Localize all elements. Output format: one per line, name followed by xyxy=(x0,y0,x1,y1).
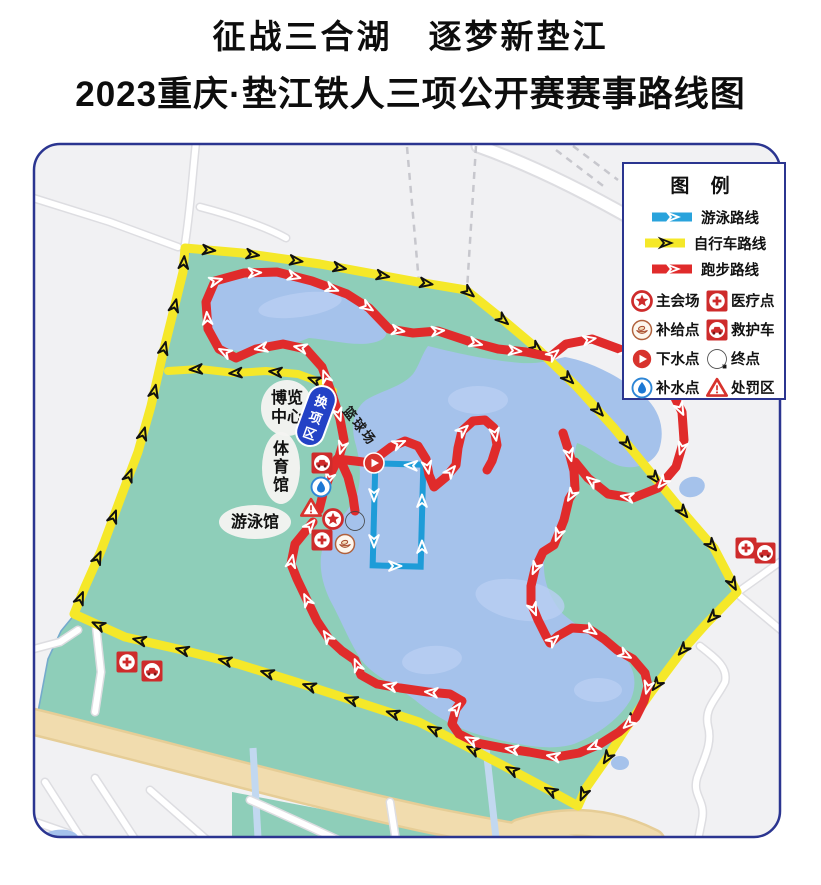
medical-icon xyxy=(117,652,138,673)
penalty-icon xyxy=(707,379,726,395)
svg-text:体: 体 xyxy=(273,439,290,458)
ambulance-icon xyxy=(705,318,729,342)
legend-point-label: 补水点 xyxy=(656,377,700,398)
penalty-icon xyxy=(705,376,729,400)
medical-icon xyxy=(312,530,333,551)
water-entry-icon xyxy=(630,347,654,371)
race-route-poster: 博览中心体育馆游泳馆篮球场换项区 征战三合湖 逐梦新垫江 2023重庆·垫江铁人… xyxy=(0,0,821,885)
legend-point-label: 主会场 xyxy=(656,290,700,311)
legend-point-penalty: 处罚区 xyxy=(705,375,778,400)
ambulance-icon xyxy=(312,453,333,474)
legend-point-water-supply: 补水点 xyxy=(630,375,703,400)
legend-title: 图 例 xyxy=(630,171,778,198)
legend-point-water-entry: 下水点 xyxy=(630,346,703,371)
finish-icon xyxy=(705,347,729,371)
legend-point-main-venue: 主会场 xyxy=(630,288,703,313)
legend-point-label: 救护车 xyxy=(731,319,775,340)
svg-text:育: 育 xyxy=(273,457,289,476)
run-route-swatch xyxy=(649,262,695,276)
map-canvas: 博览中心体育馆游泳馆篮球场换项区 xyxy=(0,0,821,885)
legend-point-ambulance: 救护车 xyxy=(705,317,778,342)
legend-route-list: 游泳路线自行车路线跑步路线 xyxy=(630,204,778,282)
legend-point-list: 主会场医疗点补给点救护车下水点终点补水点处罚区 xyxy=(630,288,778,400)
finish-icon xyxy=(708,349,727,368)
legend-point-label: 补给点 xyxy=(656,319,700,340)
water-entry-icon xyxy=(632,349,652,369)
legend-route-label: 自行车路线 xyxy=(694,233,767,254)
legend-point-finish: 终点 xyxy=(705,346,778,371)
poster-title-line2: 2023重庆·垫江铁人三项公开赛赛事路线图 xyxy=(0,66,821,117)
ambulance-icon xyxy=(142,661,163,682)
legend-point-label: 终点 xyxy=(731,348,760,369)
supply-icon xyxy=(633,320,652,339)
ambulance-icon xyxy=(707,319,728,340)
main-venue-icon xyxy=(633,291,652,310)
legend-route-label: 游泳路线 xyxy=(701,207,759,228)
water-supply-icon xyxy=(633,378,652,397)
legend-point-label: 医疗点 xyxy=(731,290,775,311)
pond-1 xyxy=(611,756,629,770)
supply-icon xyxy=(336,535,355,554)
poster-title-line1: 征战三合湖 逐梦新垫江 xyxy=(0,10,821,58)
svg-text:游泳馆: 游泳馆 xyxy=(231,512,279,531)
legend-route-label: 跑步路线 xyxy=(701,259,759,280)
main-venue-icon xyxy=(630,289,654,313)
stream-0 xyxy=(253,748,258,838)
medical-icon xyxy=(736,538,757,559)
label-swimming-hall: 游泳馆 xyxy=(219,505,291,539)
legend-point-label: 处罚区 xyxy=(731,377,775,398)
legend-route-swim: 游泳路线 xyxy=(630,204,778,230)
legend: 图 例 游泳路线自行车路线跑步路线 主会场医疗点补给点救护车下水点终点补水点处罚… xyxy=(622,162,786,400)
legend-point-supply: 补给点 xyxy=(630,317,703,342)
title-block: 征战三合湖 逐梦新垫江 2023重庆·垫江铁人三项公开赛赛事路线图 xyxy=(0,10,821,117)
highway-2 xyxy=(470,834,540,882)
water-supply-icon xyxy=(630,376,654,400)
legend-route-bike: 自行车路线 xyxy=(630,230,778,256)
legend-point-label: 下水点 xyxy=(656,348,700,369)
water-supply-icon xyxy=(312,478,331,497)
bike-route-swatch xyxy=(642,236,688,250)
legend-point-medical: 医疗点 xyxy=(705,288,778,313)
highway-1 xyxy=(520,823,652,842)
supply-icon xyxy=(630,318,654,342)
svg-text:馆: 馆 xyxy=(273,475,289,494)
medical-icon xyxy=(705,289,729,313)
road-14 xyxy=(480,840,520,884)
ambulance-icon xyxy=(755,543,776,564)
label-gymnasium: 体育馆 xyxy=(262,432,300,504)
medical-icon xyxy=(707,290,728,311)
legend-route-run: 跑步路线 xyxy=(630,256,778,282)
swim-route-swatch xyxy=(649,210,695,224)
main-venue-icon xyxy=(324,510,343,529)
water-entry-icon xyxy=(364,453,384,473)
svg-text:博览: 博览 xyxy=(271,388,303,407)
